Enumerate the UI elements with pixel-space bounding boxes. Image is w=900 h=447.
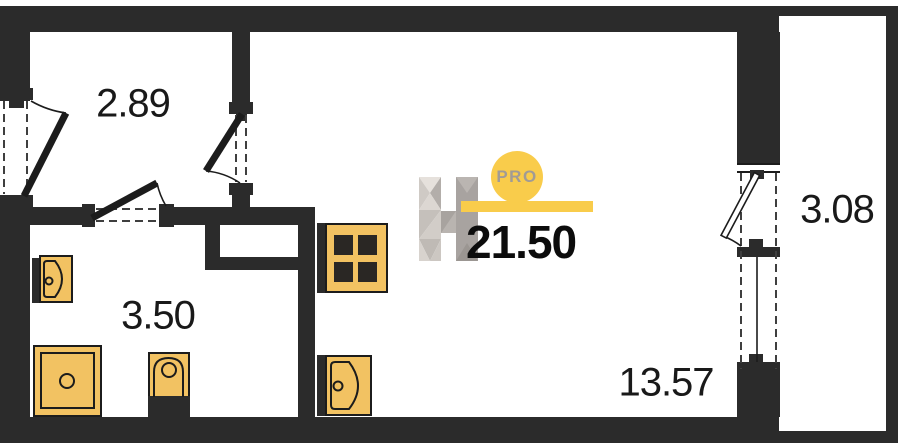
wall-balcony-bottom	[779, 431, 886, 443]
wall-top	[0, 6, 779, 32]
wall-balcony-right	[886, 6, 898, 443]
room-door-jamb-top	[229, 102, 253, 114]
stove-wall-strip	[317, 223, 325, 293]
logo-pro-badge: PRO	[491, 151, 543, 203]
toilet-tank	[148, 396, 190, 417]
wall-balcony-divider-upper	[737, 32, 780, 165]
balcony-area-label: 3.08	[800, 188, 874, 233]
stove-icon	[325, 223, 388, 293]
wall-bath-left	[30, 207, 84, 225]
bath-door-jamb-left	[82, 204, 95, 227]
wall-left-upper	[0, 6, 30, 101]
entry-door-leaf	[24, 113, 66, 196]
stove-burner	[334, 262, 353, 282]
entry-door-hinge-tab	[9, 100, 24, 108]
living-room-area-label: 13.57	[618, 361, 713, 406]
stove-burner	[358, 235, 377, 255]
room-door-hinge-tab	[236, 114, 247, 121]
entry-door-jamb-top	[0, 88, 33, 100]
wall-bath-right	[163, 207, 315, 225]
bathroom-area-label: 3.50	[121, 294, 195, 339]
kitchen-sink-icon	[325, 355, 372, 416]
wall-left-lower	[0, 197, 30, 420]
entry-door-jamb-bottom	[0, 195, 33, 207]
wall-balcony-divider-lower	[737, 372, 780, 417]
wall-hall-divider-upper	[232, 32, 250, 103]
room-door-leaf	[206, 114, 242, 171]
stove-burner	[358, 262, 377, 282]
wall-bottom	[0, 417, 779, 443]
balcony-door-leaf	[721, 173, 760, 239]
floor-plan: 2.89 3.50 13.57 3.08 PRO 21.50	[0, 0, 900, 447]
stove-burner	[334, 235, 353, 255]
washbasin-wall-strip	[32, 258, 39, 303]
balcony-door-hinge-tab	[750, 170, 764, 179]
logo-underline-bar	[461, 201, 593, 212]
room-door-arc	[206, 171, 240, 183]
balcony-window-tab-top	[749, 239, 763, 247]
shower-icon	[33, 345, 102, 417]
toilet-icon	[148, 352, 190, 397]
balcony-window-tab-bottom	[749, 354, 763, 362]
kitchen-sink-wall-strip	[317, 355, 325, 416]
washbasin-icon	[39, 255, 73, 303]
wall-shaft-bottom	[205, 257, 298, 270]
bath-door-arc	[157, 183, 166, 206]
hallway-area-label: 2.89	[96, 82, 170, 127]
total-area-label: 21.50	[466, 215, 576, 269]
balcony-door-arc	[723, 236, 741, 246]
logo-pro-text: PRO	[496, 167, 537, 187]
entry-door-arc	[31, 101, 66, 113]
room-door-jamb-bottom	[229, 183, 253, 195]
bath-door-leaf	[92, 183, 157, 218]
bath-door-jamb-right	[159, 204, 174, 227]
wall-kitchen	[298, 207, 315, 417]
wall-balcony-top	[779, 6, 898, 16]
balcony-window-sill-top	[737, 247, 780, 257]
balcony-window-sill-bottom	[737, 362, 780, 372]
